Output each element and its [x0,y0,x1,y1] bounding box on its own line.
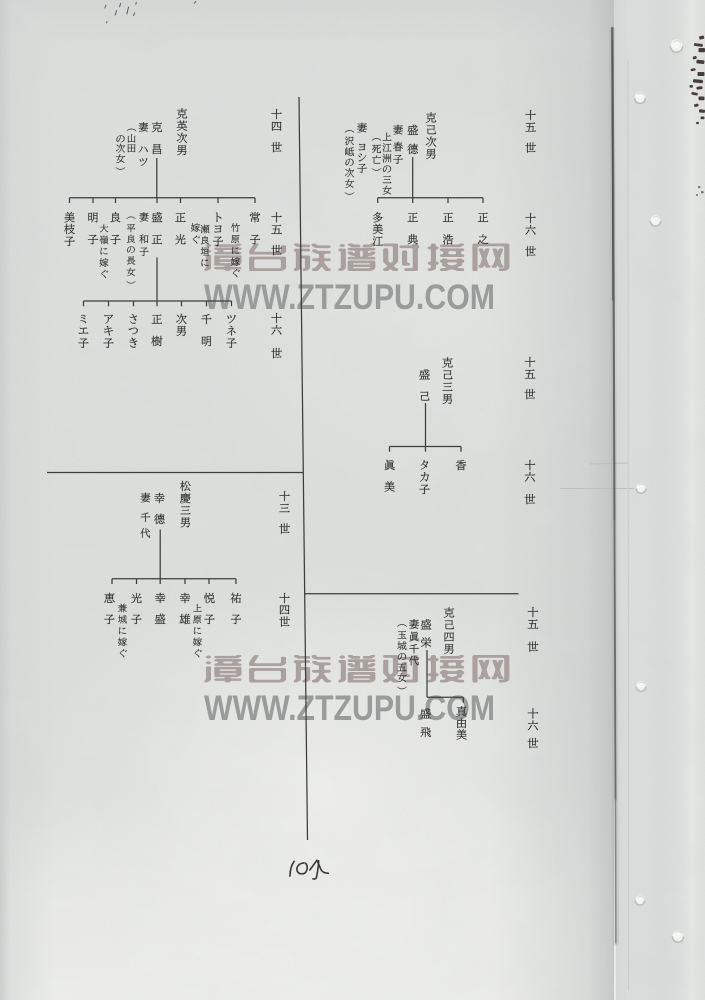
svg-text:WWW.ZTZUPU.COM: WWW.ZTZUPU.COM [204,688,495,728]
svg-text:WWW.ZTZUPU.COM: WWW.ZTZUPU.COM [204,277,495,317]
